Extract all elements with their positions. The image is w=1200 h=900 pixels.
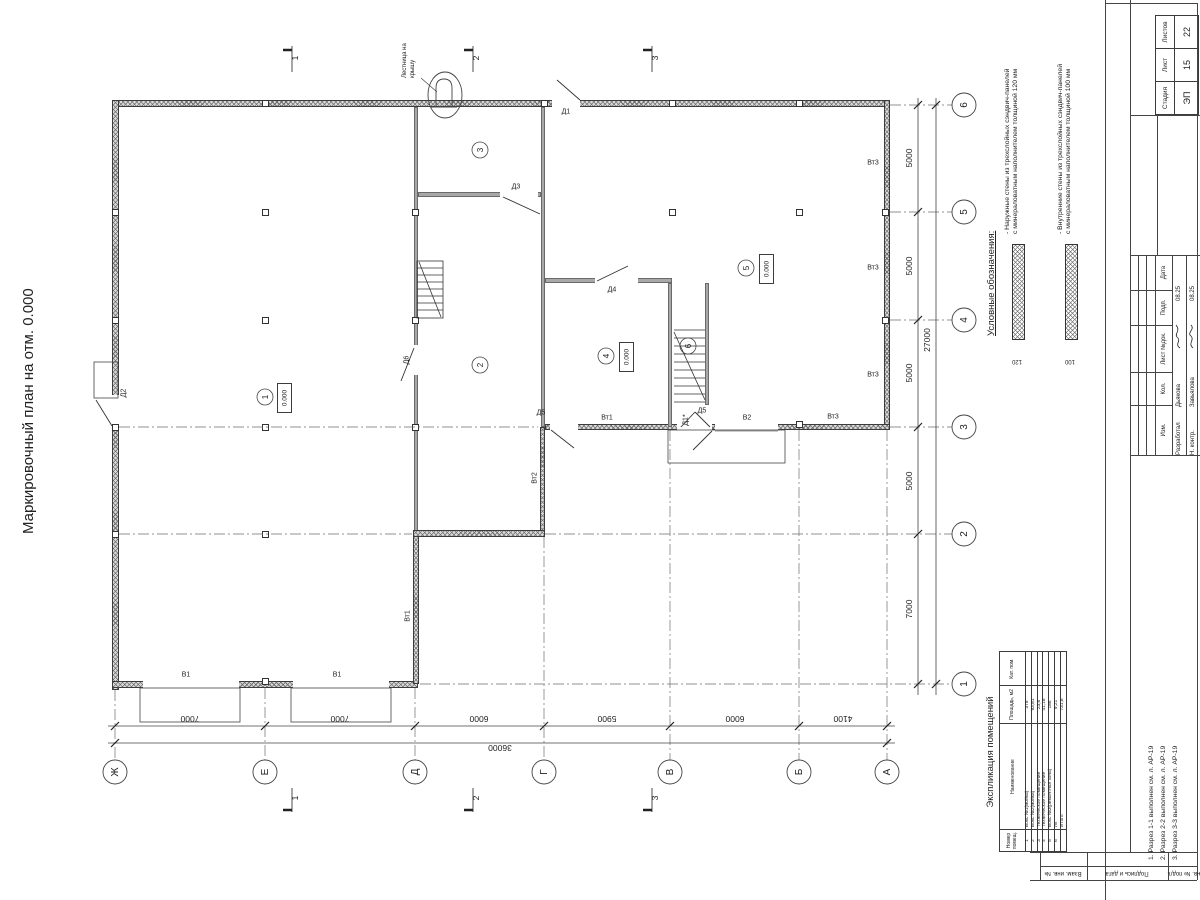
signature — [1173, 301, 1185, 349]
door-label-d4: Д4 — [608, 287, 617, 294]
gate-label-v1a: В1 — [182, 672, 191, 679]
axis-circles-numbers: 6 5 4 3 2 1 — [952, 93, 976, 696]
roof-ladder-icon — [421, 72, 462, 118]
door-label-d5: Д5 — [537, 410, 546, 417]
revision-header-row: Изм. Кол. Лист №док. Подп. Дата — [1155, 255, 1172, 455]
axis-circles-letters: Ж Е Д Г В Б А — [103, 760, 899, 784]
svg-text:6: 6 — [959, 102, 970, 108]
svg-text:3: 3 — [650, 795, 660, 800]
frame-line — [1105, 3, 1197, 4]
gate-label-v2: В2 — [743, 415, 752, 422]
signer-date: 08.25 — [1176, 261, 1182, 301]
col-header-num: Номер помещ. — [1000, 830, 1026, 852]
frame-cell-vzam: Взам. инв. № — [1044, 870, 1081, 876]
frame-cell-inv: Инв. № подл. — [1167, 870, 1200, 876]
titleblock-line — [1130, 455, 1200, 456]
svg-text:Б: Б — [794, 768, 805, 775]
stage-value: ЭП — [1175, 82, 1199, 115]
svg-text:36000: 36000 — [488, 743, 512, 753]
vent-label-vt2: Вт2 — [532, 472, 539, 484]
rev-col-kol: Кол. — [1161, 372, 1167, 405]
titleblock-line — [1130, 115, 1200, 116]
stairs — [417, 261, 705, 402]
svg-text:1: 1 — [261, 394, 270, 399]
dimension-lines — [108, 98, 936, 743]
svg-text:6000: 6000 — [469, 714, 488, 724]
col-header-cat: Кат. пом. — [1000, 652, 1026, 686]
signer-row-checker: Н. контр. Завьялова 08.25 — [1186, 255, 1200, 455]
sheet-value: 15 — [1175, 49, 1199, 82]
wall-symbol-exterior — [1012, 244, 1025, 340]
col-header-area: Площадь, м2 — [1000, 686, 1026, 724]
legend-title: Условные обозначения: — [986, 231, 997, 336]
svg-text:Ж: Ж — [110, 767, 121, 777]
svg-text:27000: 27000 — [922, 328, 932, 352]
svg-text:4: 4 — [959, 317, 970, 323]
svg-text:3: 3 — [959, 424, 970, 430]
svg-text:7000: 7000 — [904, 599, 914, 618]
titleblock-line — [1157, 115, 1158, 255]
signer-date: 08.25 — [1190, 261, 1196, 301]
sheets-value: 22 — [1175, 16, 1199, 49]
frame-line — [1105, 0, 1106, 900]
vent-label-vt1b: Вт1 — [405, 610, 412, 622]
svg-text:5000: 5000 — [904, 363, 914, 382]
door-label-d3: Д3 — [512, 184, 521, 191]
door-label-d2: Д2 — [121, 389, 128, 398]
svg-text:Д: Д — [410, 768, 421, 775]
titleblock-line — [1138, 255, 1139, 455]
svg-text:Г: Г — [539, 769, 550, 775]
signer-name: Дьякова — [1176, 349, 1182, 407]
vent-label-vt3a: Вт3 — [867, 160, 879, 167]
svg-text:5900: 5900 — [597, 714, 616, 724]
rev-col-izm: Изм. — [1161, 405, 1167, 455]
svg-text:4100: 4100 — [833, 714, 852, 724]
svg-text:2: 2 — [959, 531, 970, 537]
room-table: Номер помещ. Наименование Площадь, м2 Ка… — [999, 652, 1060, 852]
drawing-sheet: Маркировочный план на отм. 0.000 — [0, 0, 1200, 900]
titleblock-line — [1146, 255, 1147, 455]
frame-line — [1030, 880, 1197, 881]
door-label-d1s: Д1* — [683, 414, 690, 425]
stage-block: Стадия Лист Листов ЭП 15 22 — [1155, 15, 1200, 115]
vent-label-vt3d: Вт3 — [827, 414, 839, 421]
dimension-ticks — [111, 101, 940, 747]
wall-symbol-interior — [1065, 244, 1078, 340]
rev-col-podp: Подп. — [1161, 290, 1167, 325]
svg-text:1: 1 — [290, 55, 300, 60]
svg-text:5: 5 — [742, 265, 751, 270]
svg-text:5000: 5000 — [904, 148, 914, 167]
svg-text:1: 1 — [959, 681, 970, 687]
svg-text:2: 2 — [471, 55, 481, 60]
sheets-label: Листов — [1156, 16, 1175, 49]
door-leaves — [96, 80, 778, 450]
svg-text:5000: 5000 — [904, 256, 914, 275]
svg-text:5000: 5000 — [904, 471, 914, 490]
table-row: Итого731,8 — [1060, 652, 1066, 852]
signature — [1187, 301, 1199, 349]
frame-line — [1087, 852, 1088, 880]
table-cell — [1060, 652, 1066, 686]
elevation-mark: 0.000 — [277, 383, 292, 413]
ramps — [94, 362, 785, 722]
frame-line — [1040, 852, 1041, 880]
svg-text:2: 2 — [476, 362, 485, 367]
svg-text:7000: 7000 — [330, 714, 349, 724]
svg-text:3: 3 — [650, 55, 660, 60]
gate-label-v1b: В1 — [333, 672, 342, 679]
note-line: 2. Разрез 2-2 выполнен см. л. АР-19 — [1158, 746, 1170, 860]
rev-col-list: Лист №док. — [1161, 325, 1167, 372]
svg-text:Е: Е — [260, 768, 271, 775]
svg-text:3: 3 — [476, 147, 485, 152]
roof-ladder-label: Лестница на крышу — [402, 26, 422, 78]
sheet-label: Лист — [1156, 49, 1175, 82]
grid-dashdot-lines — [115, 105, 952, 760]
svg-text:6000: 6000 — [725, 714, 744, 724]
door-label-d5b: Д5 — [698, 408, 707, 415]
table-cell: 731,8 — [1060, 686, 1066, 724]
signer-name: Завьялова — [1190, 349, 1196, 407]
section-marks: 1 2 3 1 2 3 — [283, 46, 660, 812]
rev-col-data: Дата — [1161, 255, 1167, 290]
elevation-mark: 0.000 — [759, 254, 774, 284]
table-cell: Итого — [1060, 724, 1066, 830]
legend-dim-120: 120 — [1012, 358, 1022, 364]
notes-block: 1. Разрез 1-1 выполнен см. л. АР-19 2. Р… — [1146, 746, 1186, 860]
dimension-values: 7000 7000 6000 5900 6000 4100 36000 5000… — [180, 148, 932, 753]
table-cell — [1060, 830, 1066, 852]
room-table-body: 1Бокс №1(мойка)3782Бокс №2(мойка)93,813Т… — [1026, 652, 1067, 852]
door-label-d1: Д1 — [562, 109, 571, 116]
room-tags: 1 2 3 4 5 6 — [257, 142, 754, 405]
svg-text:2: 2 — [471, 795, 481, 800]
col-header-name: Наименование — [1000, 724, 1026, 830]
stage-label: Стадия — [1156, 82, 1175, 115]
svg-text:1: 1 — [290, 795, 300, 800]
vent-label-vt3c: Вт3 — [867, 372, 879, 379]
legend-text-interior: - Внутренние стены из трехслойных сэндви… — [1057, 64, 1074, 234]
svg-text:А: А — [882, 768, 893, 775]
svg-text:6: 6 — [684, 343, 693, 348]
table-header-row: Номер помещ. Наименование Площадь, м2 Ка… — [1000, 652, 1026, 852]
note-line: 1. Разрез 1-1 выполнен см. л. АР-19 — [1146, 746, 1158, 860]
vent-label-vt3b: Вт3 — [867, 265, 879, 272]
svg-text:5: 5 — [959, 209, 970, 215]
signer-role: Н. контр. — [1190, 407, 1196, 455]
elevation-mark: 0.000 — [619, 342, 634, 372]
frame-line — [1130, 0, 1131, 852]
note-line: 3. Разрез 3-3 выполнен см. л. АР-19 — [1170, 746, 1182, 860]
legend: Условные обозначения: 120 - Наружные сте… — [986, 64, 1100, 380]
room-table-title: Экспликация помещений — [985, 652, 998, 852]
signer-role: Разработал — [1176, 407, 1182, 455]
legend-text-exterior: - Наружные стены из трехслойных сэндвич-… — [1004, 64, 1021, 234]
door-label-d6: Д6 — [404, 356, 411, 365]
signer-row-developer: Разработал Дьякова 08.25 — [1172, 255, 1186, 455]
vent-label-vt1a: Вт1 — [601, 415, 613, 422]
frame-cell-podpis: Подпись и дата — [1105, 870, 1148, 876]
legend-dim-100: 100 — [1065, 358, 1075, 364]
svg-text:4: 4 — [602, 353, 611, 358]
svg-text:7000: 7000 — [180, 714, 199, 724]
svg-text:В: В — [665, 768, 676, 775]
frame-line — [1040, 866, 1197, 867]
